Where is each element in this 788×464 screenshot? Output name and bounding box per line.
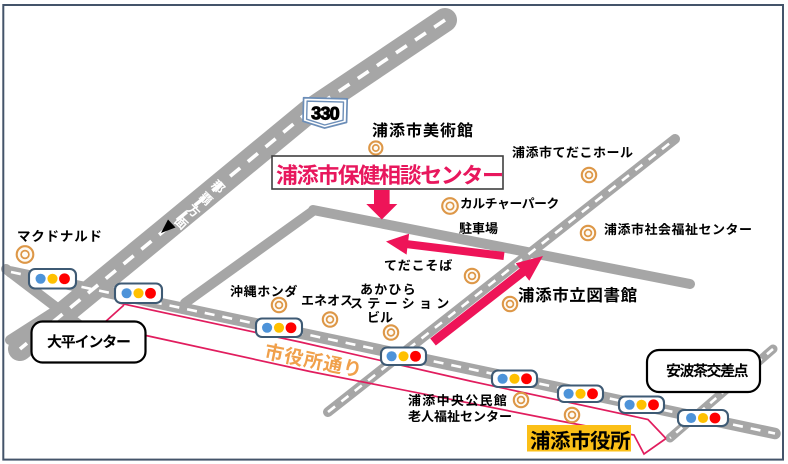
svg-text:330: 330 bbox=[311, 103, 340, 124]
